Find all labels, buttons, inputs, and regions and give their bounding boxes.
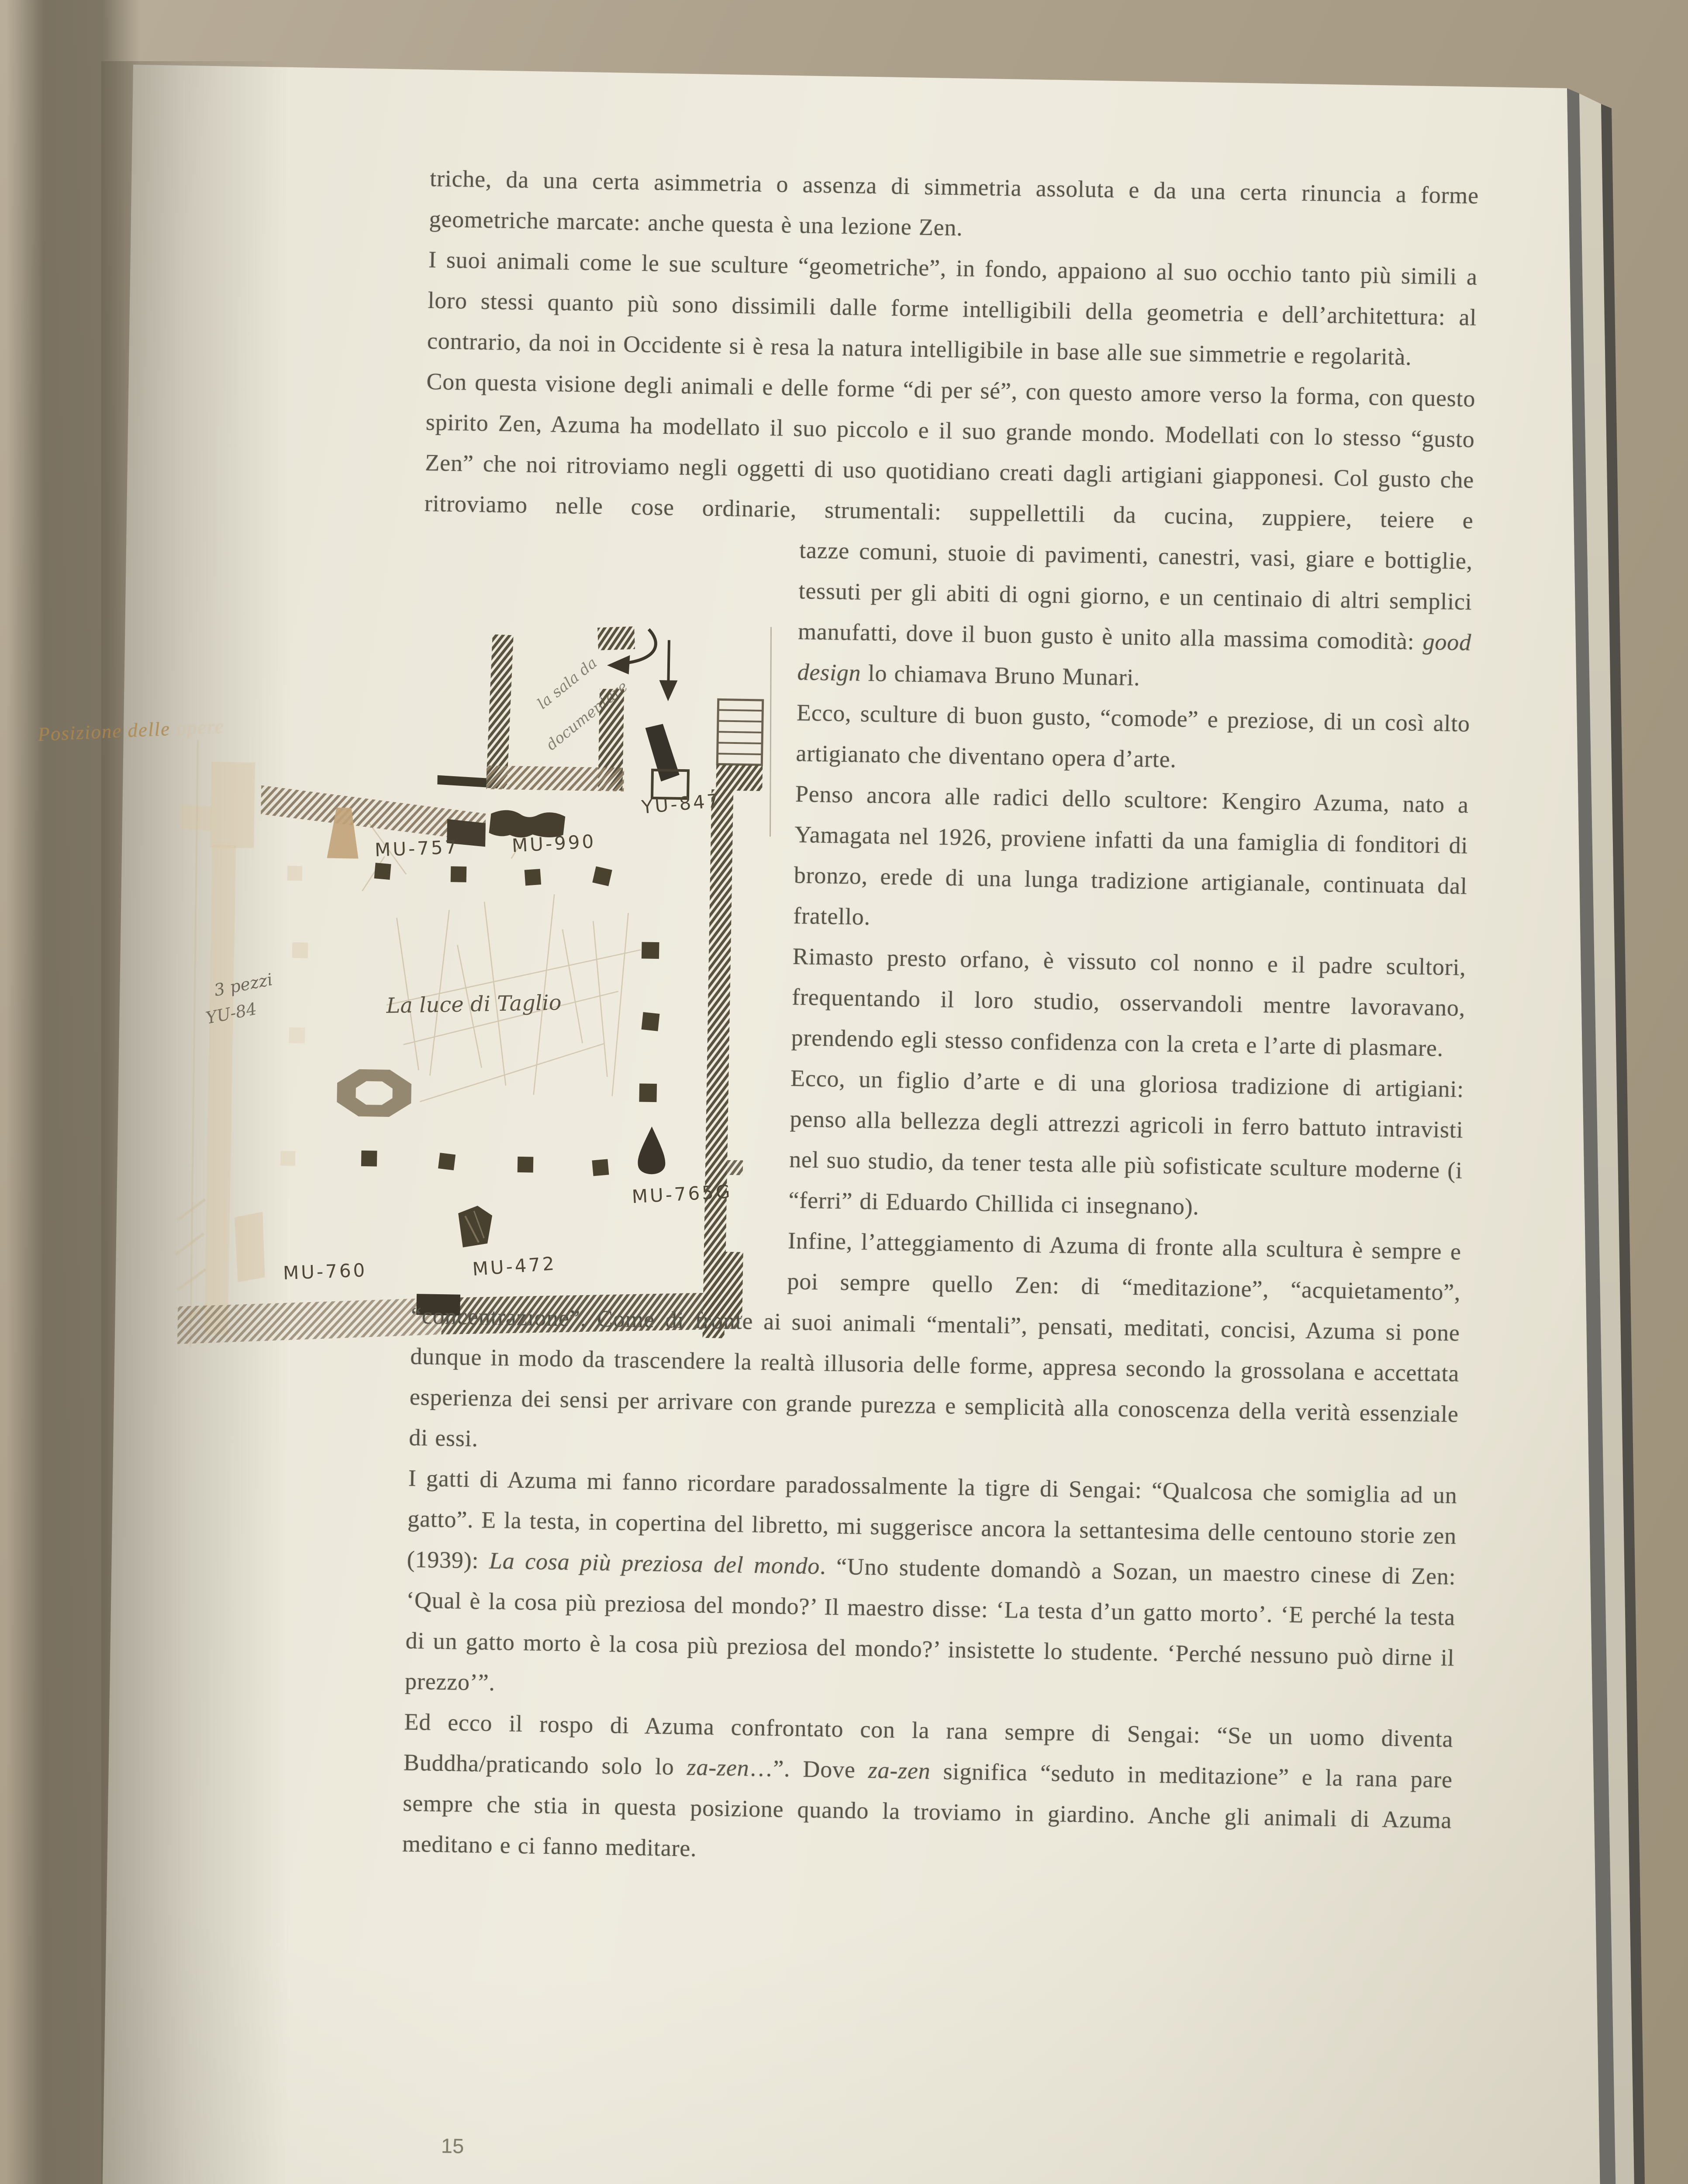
figure-spacer: [411, 524, 800, 1302]
photo-of-book-page: 3 pezzi YU-84 la sala da docume: [0, 0, 1688, 2184]
label-mu760: MU-760: [283, 1259, 367, 1284]
body-text: triche, da una certa asimmetria o assenz…: [402, 158, 1479, 1881]
paragraph: Con questa visione degli animali e delle…: [424, 361, 1476, 541]
sculpture-ring: [337, 1069, 412, 1117]
paragraph: I suoi animali come le sue sculture “geo…: [427, 239, 1477, 379]
page-number: 15: [441, 2134, 464, 2158]
paragraph: tazze comuni, stuoie di pavimenti, canes…: [421, 524, 1473, 704]
ghost-left-wall: 3 pezzi YU-84: [171, 740, 311, 1349]
margin-note-faded-word: opere: [176, 715, 225, 740]
paragraph: Ed ecco il rospo di Azuma confrontato co…: [402, 1702, 1453, 1882]
paragraph: I gatti di Azuma mi fanno ricordare para…: [404, 1458, 1457, 1719]
